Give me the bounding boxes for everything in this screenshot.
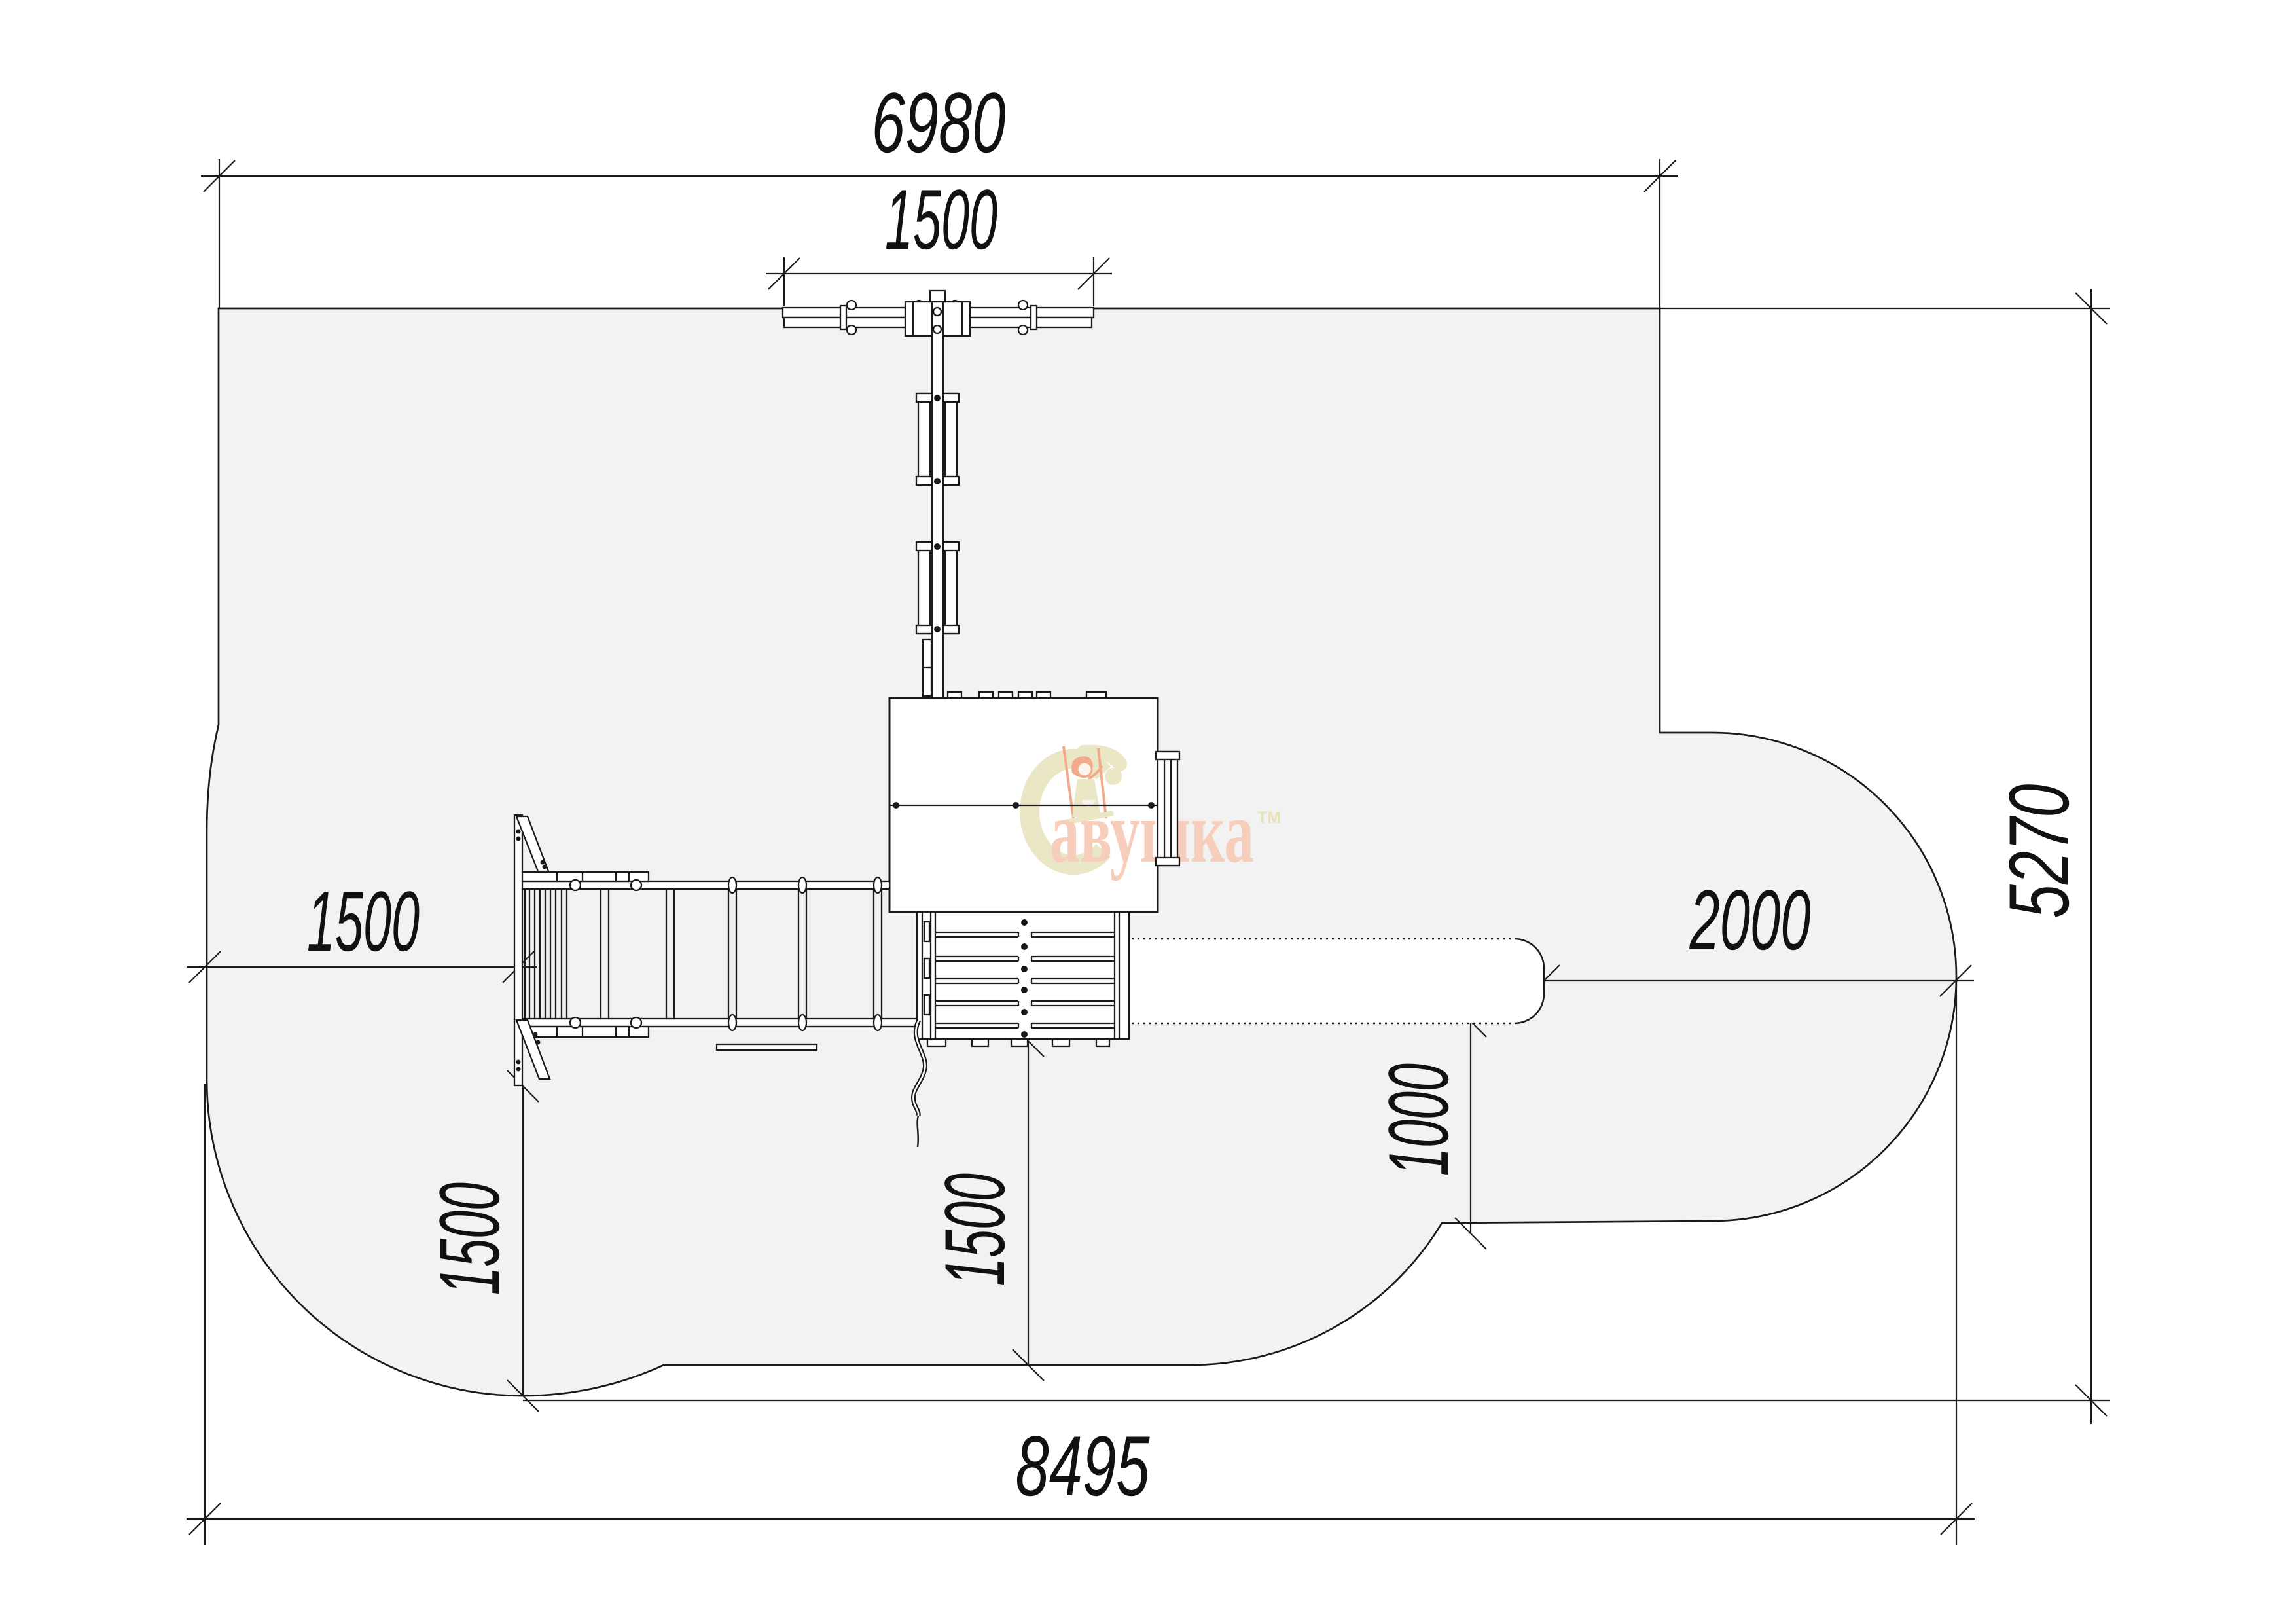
svg-text:6980: 6980 bbox=[872, 75, 1006, 170]
svg-text:8495: 8495 bbox=[1016, 1418, 1150, 1514]
svg-text:1000: 1000 bbox=[1371, 1063, 1466, 1176]
svg-text:5270: 5270 bbox=[1991, 784, 2087, 919]
svg-text:2000: 2000 bbox=[1689, 872, 1811, 968]
svg-text:1500: 1500 bbox=[927, 1173, 1022, 1286]
svg-text:1500: 1500 bbox=[307, 873, 420, 969]
svg-text:1500: 1500 bbox=[885, 172, 997, 267]
svg-text:TM: TM bbox=[1257, 809, 1281, 827]
svg-text:авушка: авушка bbox=[1050, 784, 1254, 881]
svg-text:1500: 1500 bbox=[422, 1182, 517, 1295]
